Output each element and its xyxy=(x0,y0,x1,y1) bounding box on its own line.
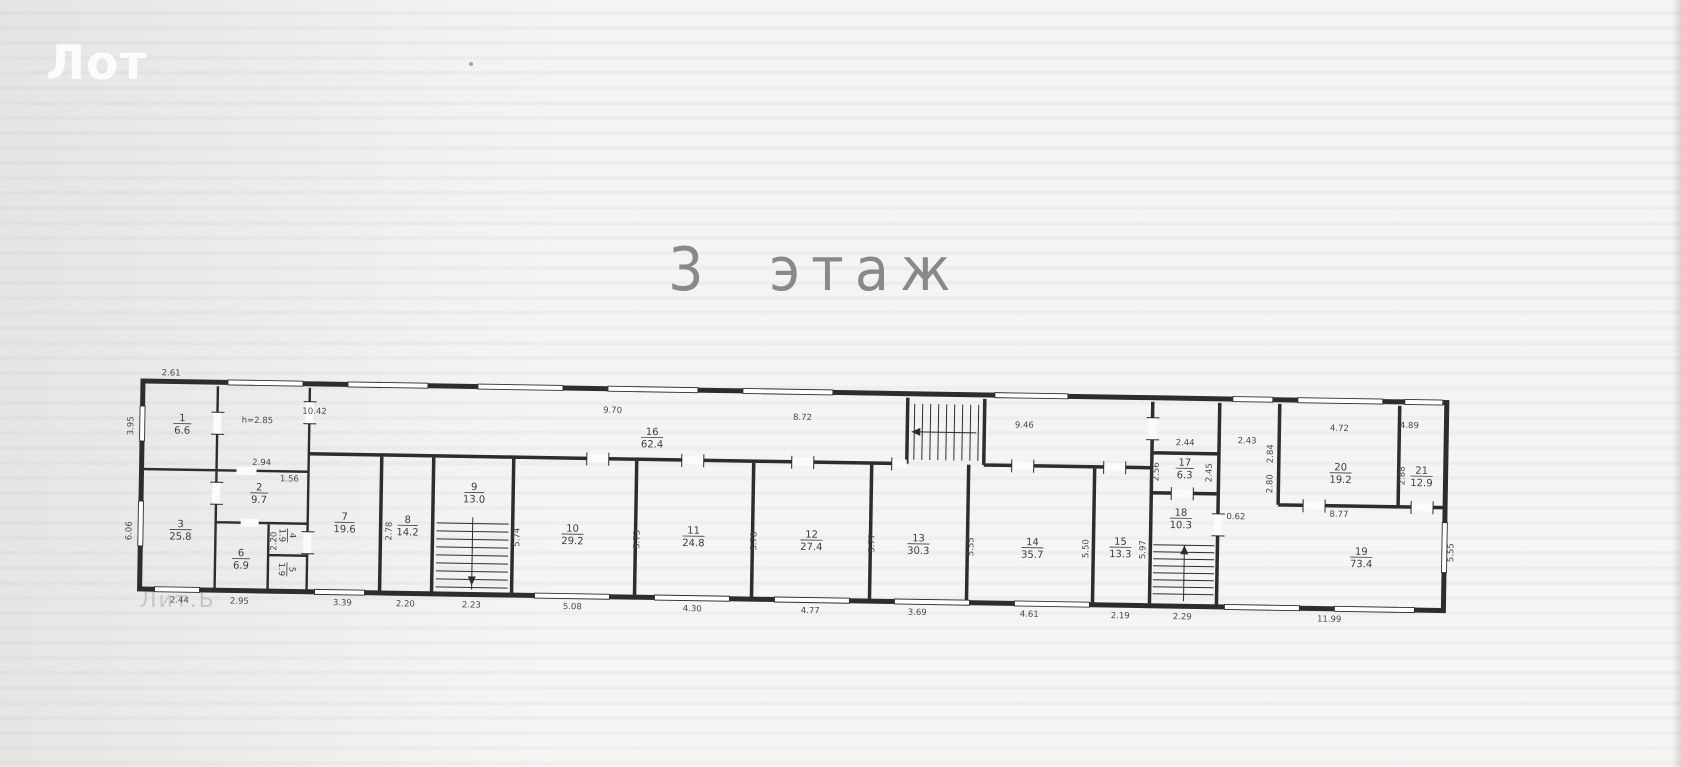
dim-top-7: 4.72 xyxy=(1330,424,1349,434)
dim-interior-9: 5.50 xyxy=(1081,539,1091,558)
dim-bottom-0: 2.44 xyxy=(170,595,189,605)
room-15-number: 15 xyxy=(1114,537,1127,548)
dim-left-0: 3.95 xyxy=(126,416,136,435)
dim-bottom-2: 3.39 xyxy=(333,598,352,608)
room-1-area: 6.6 xyxy=(174,426,190,437)
dim-interior-12: 2.45 xyxy=(1204,463,1214,482)
dim-bottom-12: 11.99 xyxy=(1317,614,1342,624)
dim-bottom-8: 3.69 xyxy=(908,608,927,618)
room-13-number: 13 xyxy=(912,533,925,544)
dim-left-1: 6.06 xyxy=(124,521,134,540)
room-17-number: 17 xyxy=(1178,458,1191,469)
room-21-number: 21 xyxy=(1415,466,1428,477)
dim-top-2: 9.70 xyxy=(603,406,622,416)
dim-interior-16: 2.80 xyxy=(1265,474,1275,493)
dim-interior-17: 2.88 xyxy=(1397,466,1407,485)
stair-18-arrow xyxy=(1180,545,1188,554)
dim-interior-5: 5.73 xyxy=(632,530,642,549)
dim-bottom-6: 4.30 xyxy=(683,604,702,614)
dim-top-3: 8.72 xyxy=(793,413,812,423)
dim-interior-7: 5.77 xyxy=(867,534,877,553)
dim-bottom-10: 2.19 xyxy=(1111,611,1130,621)
room-19-area: 73.4 xyxy=(1350,559,1372,570)
room-5-number: 5 xyxy=(286,567,296,573)
dim-right-0: 5.55 xyxy=(1446,543,1456,562)
dim-top-6: 2.43 xyxy=(1238,436,1257,446)
room-21-area: 12.9 xyxy=(1410,478,1432,489)
dim-interior-15: 2.84 xyxy=(1266,444,1276,463)
dim-ceiling-height: h=2.85 xyxy=(242,416,274,427)
room-4-number: 4 xyxy=(287,533,297,539)
staircase-18 xyxy=(1152,545,1214,602)
room-1-number: 1 xyxy=(179,413,186,424)
dim-bottom-4: 2.23 xyxy=(462,600,481,610)
dim-bottom-11: 2.29 xyxy=(1173,612,1192,622)
dim-interior-2: 1.56 xyxy=(280,474,299,484)
floor-plan-svg: 1 6.6 2 9.7 3 25.8 4 1.9 5 1.9 6 6.9 7 xyxy=(0,0,1681,767)
dim-top-0: 2.61 xyxy=(162,368,181,378)
dim-top-5: 2.44 xyxy=(1176,438,1195,448)
room-2-area: 9.7 xyxy=(251,495,267,506)
dim-interior-3: 2.78 xyxy=(384,522,394,541)
room-16-area: 62.4 xyxy=(641,439,663,450)
room-5-area: 1.9 xyxy=(276,562,286,576)
dim-interior-10: 5.97 xyxy=(1138,540,1148,559)
room-19-number: 19 xyxy=(1355,547,1368,558)
door-openings xyxy=(211,400,1434,572)
room-11-area: 24.8 xyxy=(682,538,704,549)
scan-speck xyxy=(469,62,473,66)
room-8-area: 14.2 xyxy=(396,527,418,538)
dim-interior-4: 5.74 xyxy=(512,528,522,547)
room-9-number: 9 xyxy=(471,482,478,493)
dim-bottom-5: 5.08 xyxy=(563,602,582,612)
dim-interior-11: 2.56 xyxy=(1151,462,1161,481)
floor-plan-drawing: 1 6.6 2 9.7 3 25.8 4 1.9 5 1.9 6 6.9 7 xyxy=(123,368,1459,627)
partition-walls xyxy=(140,385,310,590)
dimension-labels: 2.61 10.42 9.70 8.72 9.46 2.44 2.43 4.72… xyxy=(123,368,1459,627)
room-18-area: 10.3 xyxy=(1170,520,1192,531)
room-14-number: 14 xyxy=(1026,537,1039,548)
room-9-area: 13.0 xyxy=(463,494,485,505)
dim-interior-14: 8.77 xyxy=(1329,510,1348,520)
room-2-number: 2 xyxy=(256,482,263,493)
room-16-number: 16 xyxy=(646,427,659,438)
stair-9-arrow xyxy=(468,576,476,585)
dim-interior-6: 5.78 xyxy=(749,532,759,551)
room-6-area: 6.9 xyxy=(233,561,249,572)
room-15-area: 13.3 xyxy=(1109,549,1131,560)
dim-interior-1: 2.94 xyxy=(252,458,271,468)
room-7-number: 7 xyxy=(341,512,348,523)
room-3-area: 25.8 xyxy=(169,531,191,542)
room-10-area: 29.2 xyxy=(561,536,583,547)
staircase-top xyxy=(911,404,979,461)
room-8-number: 8 xyxy=(404,515,411,526)
room-20-area: 19.2 xyxy=(1329,475,1351,486)
dim-bottom-9: 4.61 xyxy=(1020,610,1039,620)
room-17-area: 6.3 xyxy=(1177,470,1193,481)
room-13-area: 30.3 xyxy=(907,546,929,557)
dim-top-1: 10.42 xyxy=(302,407,327,417)
room-12-area: 27.4 xyxy=(800,542,822,553)
room-14-area: 35.7 xyxy=(1021,550,1043,561)
room-5-label: 5 1.9 xyxy=(276,562,297,576)
room-7-area: 19.6 xyxy=(333,524,355,535)
dim-bottom-7: 4.77 xyxy=(801,606,820,616)
dim-bottom-3: 2.20 xyxy=(396,599,415,609)
room-3-number: 3 xyxy=(177,519,184,530)
staircase-9 xyxy=(436,517,509,590)
dim-interior-18: 2.20 xyxy=(269,532,279,551)
room-20-number: 20 xyxy=(1334,462,1347,473)
dim-top-8: 4.89 xyxy=(1400,421,1419,431)
room-10-number: 10 xyxy=(566,524,579,535)
room-11-number: 11 xyxy=(687,526,700,537)
dim-interior-13: 0.62 xyxy=(1226,512,1245,522)
stair-top-arrow xyxy=(911,428,920,436)
room-12-number: 12 xyxy=(805,530,818,541)
dim-top-4: 9.46 xyxy=(1015,420,1034,430)
dim-interior-8: 5.55 xyxy=(966,537,976,556)
dim-bottom-1: 2.95 xyxy=(230,596,249,606)
room-18-number: 18 xyxy=(1174,508,1187,519)
room-6-number: 6 xyxy=(238,548,245,559)
